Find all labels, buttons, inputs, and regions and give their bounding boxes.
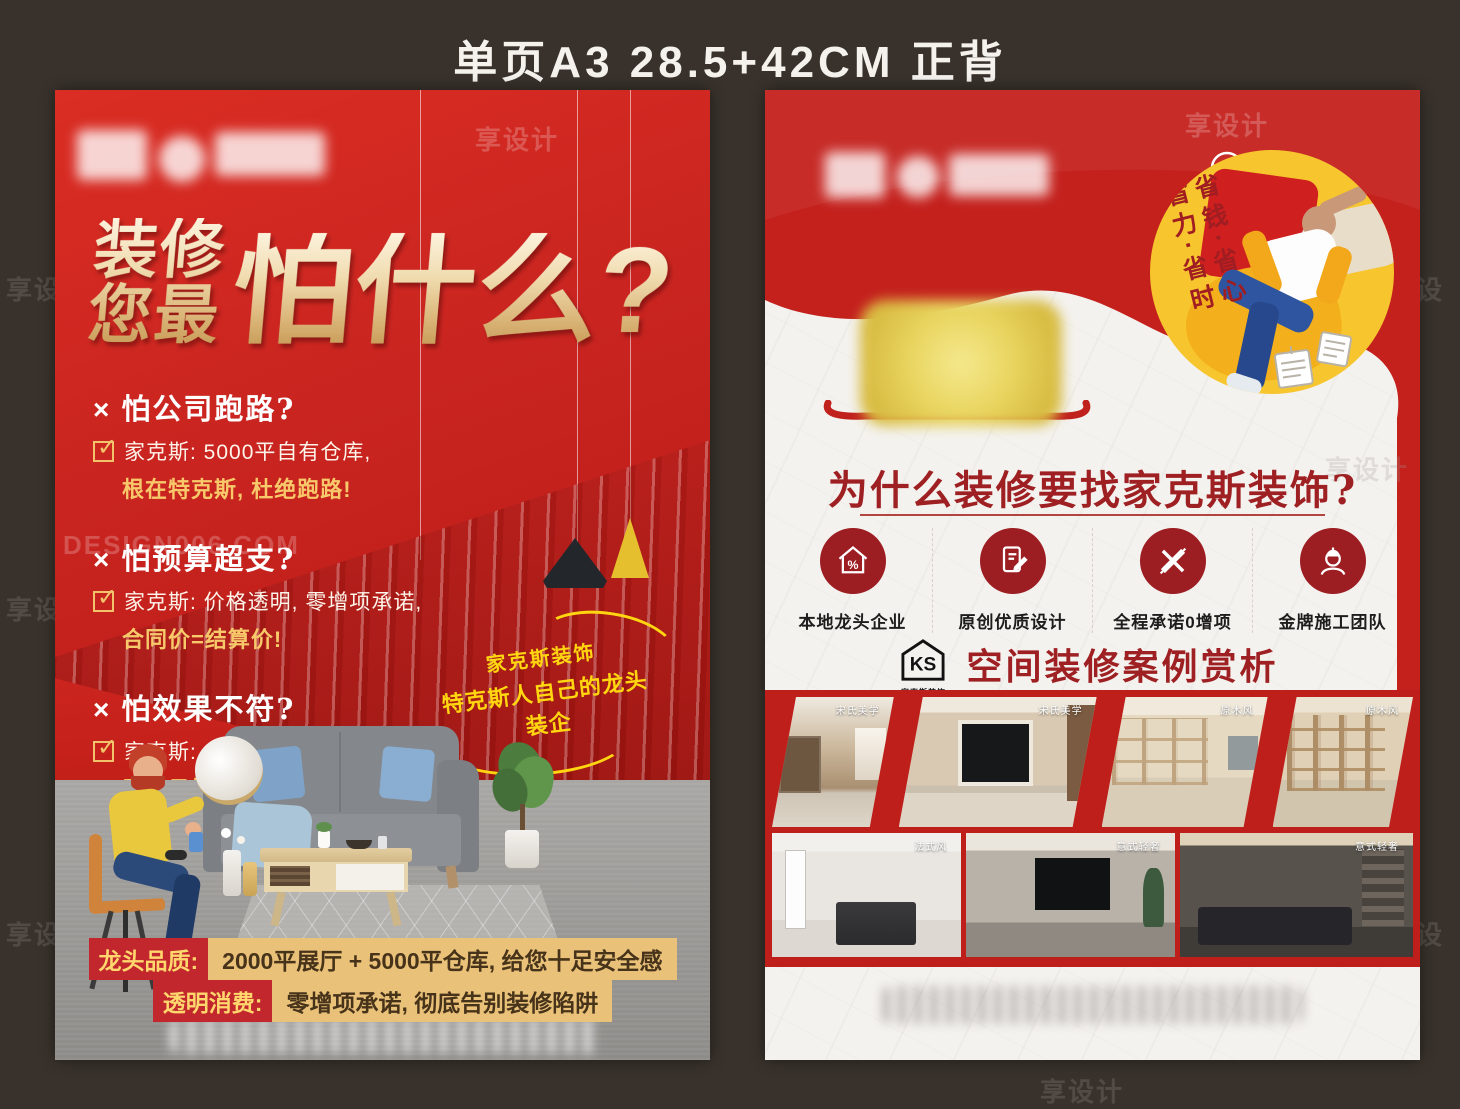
fear-question: ×怕公司跑路? [93, 386, 453, 428]
svg-text:%: % [847, 558, 858, 572]
deer-pillow [379, 746, 435, 802]
front-title-line1: 装修 [91, 218, 229, 283]
case-photo: 原木风 [1273, 697, 1413, 827]
cup [378, 836, 387, 849]
potted-plant [491, 742, 557, 868]
blurred-association-logo [860, 300, 1062, 426]
vase [223, 850, 241, 896]
case-photo-label: 意式轻奢 [1117, 838, 1161, 853]
blurred-brand-logo [77, 112, 327, 198]
case-photo-label: 宋氏美学 [1039, 702, 1083, 717]
case-photo-row-1: 宋氏美学 宋氏美学 原木风 原木风 [772, 697, 1413, 827]
ks-house-icon: KS [900, 638, 946, 682]
cross-mark-icon: × [93, 394, 111, 425]
fear-item: ×怕公司跑路? ✓家克斯: 5000平自有仓库, 根在特克斯, 杜绝跑路! [93, 386, 453, 504]
feature-original-design: 原创优质设计 [932, 528, 1092, 633]
cross-mark-icon: × [93, 694, 111, 725]
banner-transparency-text: 零增项承诺, 彻底告别装修陷阱 [272, 980, 612, 1022]
sheet-title: 单页A3 28.5+42CM 正背 [0, 26, 1460, 90]
svg-text:KS: KS [910, 655, 937, 676]
fear-answer: ✓家克斯: 5000平自有仓库, [93, 436, 453, 466]
case-photo: 法式风 [772, 833, 961, 957]
character-arm [160, 794, 206, 824]
banner-quality-text: 2000平展厅 + 5000平仓库, 给您十足安全感 [208, 938, 676, 980]
front-title-small-lines: 装修 您最 [85, 218, 228, 349]
banner-quality-label: 龙头品质: [89, 938, 209, 980]
character-cup [189, 832, 203, 852]
blurred-phone-number [883, 986, 1303, 1024]
feature-circle [1140, 528, 1206, 594]
house-percent-icon: % [835, 543, 871, 579]
feature-circle: % [820, 528, 886, 594]
table-vase [318, 830, 330, 848]
builder-icon [1315, 543, 1351, 579]
back-poster: 享设计 享设计 省钱·省心 省力·省时 为什么装修要找家克斯装饰? [765, 90, 1420, 1060]
blurred-brand-logo [825, 136, 1055, 216]
front-poster: 享设计 DESIGN006.COM 装修 您最 怕什么? ×怕公司跑路? ✓家克… [55, 90, 710, 1060]
feature-label: 原创优质设计 [937, 608, 1088, 633]
cross-mark-icon: × [93, 544, 111, 575]
front-title: 装修 您最 怕什么? [85, 218, 679, 349]
case-photo: 原木风 [1102, 697, 1268, 827]
case-photo-label: 意式轻奢 [1355, 838, 1399, 853]
checkbox-icon: ✓ [93, 591, 114, 612]
case-photo: 意式轻奢 [1180, 833, 1413, 957]
fear-question: ×怕效果不符? [93, 686, 453, 728]
fear-item: ×怕预算超支? ✓家克斯: 价格透明, 零增项承诺, 合同价=结算价! [93, 536, 453, 654]
feature-gold-team: 金牌施工团队 [1252, 528, 1412, 633]
checkbox-icon: ✓ [93, 441, 114, 462]
feature-label: 本地龙头企业 [777, 608, 928, 633]
fear-answer: ✓家克斯: 价格透明, 零增项承诺, [93, 586, 453, 616]
case-photo: 意式轻奢 [966, 833, 1174, 957]
feature-list: % 本地龙头企业 原创优质设计 [773, 528, 1412, 633]
feature-label: 金牌施工团队 [1257, 608, 1408, 633]
banner-transparency-label: 透明消费: [153, 980, 273, 1022]
crossed-tools-icon [1155, 543, 1191, 579]
table-plant [316, 822, 332, 832]
watermark: 享设计 [1040, 1072, 1124, 1109]
fear-answer-highlight: 根在特克斯, 杜绝跑路! [122, 472, 453, 504]
notes-doodle-icon [1273, 330, 1353, 392]
banner-quality: 龙头品质:2000平展厅 + 5000平仓库, 给您十足安全感 [55, 938, 710, 980]
front-title-big: 怕什么? [227, 233, 678, 349]
fear-question: ×怕预算超支? [93, 536, 453, 578]
character-watch [165, 850, 187, 860]
blurred-phone-number [170, 1018, 600, 1054]
feature-circle [980, 528, 1046, 594]
watermark: 享设计 [475, 120, 559, 157]
case-photo-label: 原木风 [1221, 702, 1254, 717]
feature-local-leader: % 本地龙头企业 [773, 528, 932, 633]
case-photo: 宋氏美学 [899, 697, 1097, 827]
feature-zero-additions: 全程承诺0增项 [1092, 528, 1252, 633]
white-flower [237, 836, 245, 844]
white-flower [221, 828, 231, 838]
banner-transparency: 透明消费:零增项承诺, 彻底告别装修陷阱 [55, 980, 710, 1022]
case-photo-label: 宋氏美学 [836, 702, 880, 717]
front-title-line2: 您最 [85, 283, 223, 348]
feature-label: 全程承诺0增项 [1097, 608, 1248, 633]
why-choose-title: 为什么装修要找家克斯装饰? [765, 458, 1420, 516]
case-photo-label: 法式风 [914, 838, 947, 853]
feature-circle [1300, 528, 1366, 594]
design-doc-icon [995, 543, 1031, 579]
case-photo: 宋氏美学 [772, 697, 894, 827]
savings-circle-badge: 省钱·省心 省力·省时 [1150, 150, 1394, 394]
coffee-table [260, 848, 412, 926]
chair-seat [91, 898, 166, 914]
gold-vase [243, 862, 257, 896]
fear-answer-highlight: 合同价=结算价! [122, 622, 453, 654]
case-photo-label: 原木风 [1366, 702, 1399, 717]
title-underline [860, 514, 1325, 516]
case-photo-row-2: 法式风 意式轻奢 意式轻奢 [772, 833, 1413, 957]
